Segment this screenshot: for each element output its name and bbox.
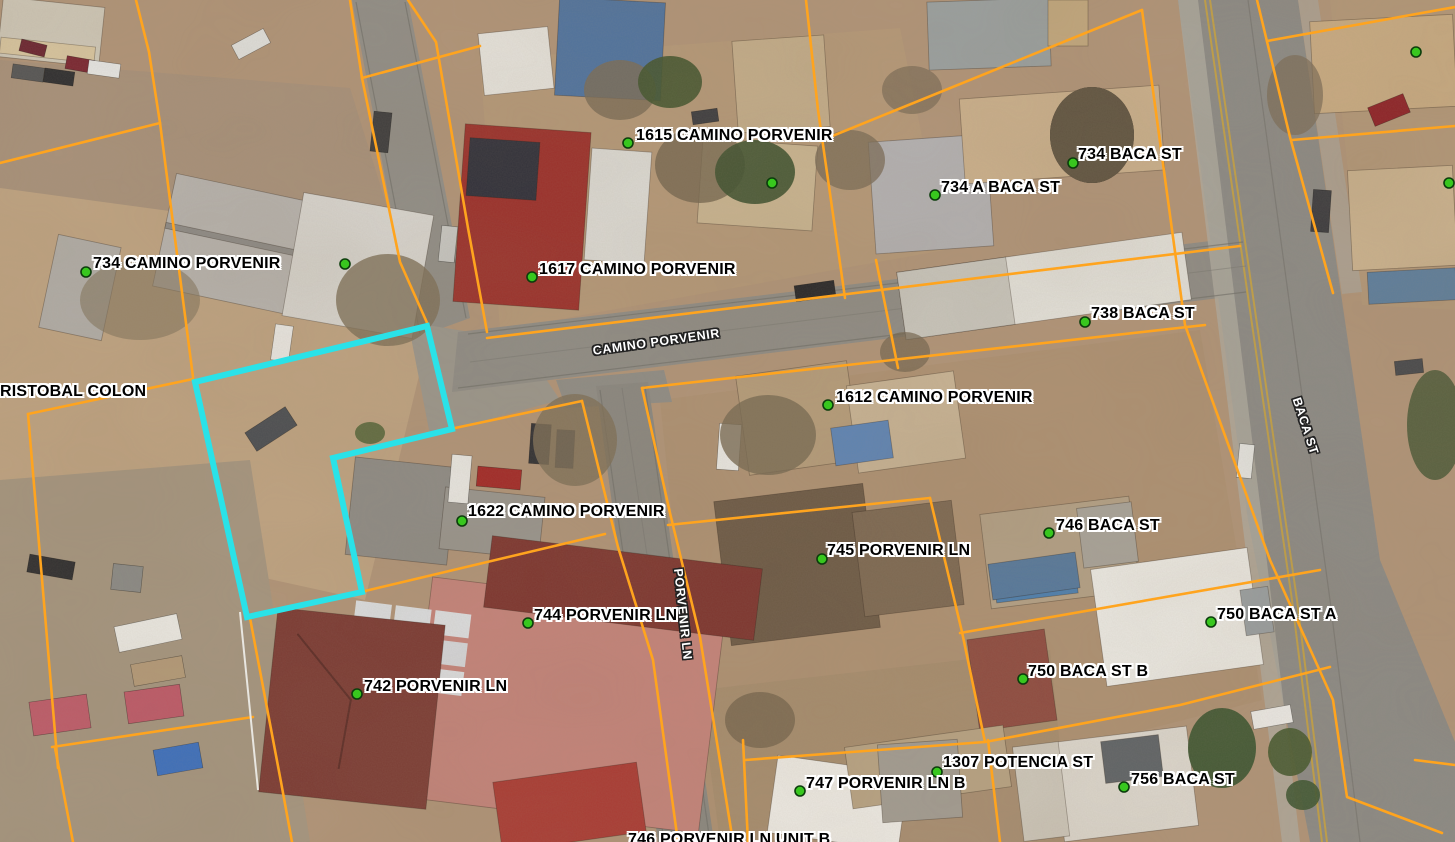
address-label: 1307 POTENCIA ST (943, 755, 1093, 772)
address-label: RISTOBAL COLON (0, 384, 146, 401)
address-marker[interactable] (523, 618, 533, 628)
address-label: 745 PORVENIR LN (827, 543, 970, 560)
address-marker[interactable] (527, 272, 537, 282)
address-label: 747 PORVENIR LN B (806, 776, 966, 793)
address-label: 750 BACA ST B (1028, 664, 1148, 681)
address-label: 734 BACA ST (1078, 147, 1182, 164)
address-label: 734 CAMINO PORVENIR (93, 256, 281, 273)
address-marker[interactable] (457, 516, 467, 526)
address-label: 756 BACA ST (1131, 772, 1235, 789)
address-marker[interactable] (1018, 674, 1028, 684)
address-marker[interactable] (823, 400, 833, 410)
address-label: 746 BACA ST (1056, 518, 1160, 535)
address-marker[interactable] (340, 259, 350, 269)
address-label: 734 A BACA ST (941, 180, 1060, 197)
address-label: 744 PORVENIR LN (534, 608, 677, 625)
address-marker[interactable] (352, 689, 362, 699)
address-label: 1622 CAMINO PORVENIR (468, 504, 665, 521)
address-marker[interactable] (1444, 178, 1454, 188)
address-marker[interactable] (817, 554, 827, 564)
address-label: 746 PORVENIR LN UNIT B (628, 832, 830, 842)
address-label: 1612 CAMINO PORVENIR (836, 390, 1033, 407)
address-marker[interactable] (1044, 528, 1054, 538)
address-marker[interactable] (795, 786, 805, 796)
address-marker[interactable] (767, 178, 777, 188)
aerial-map[interactable]: 1615 CAMINO PORVENIR 734 BACA ST 734 A B… (0, 0, 1455, 842)
address-label: 738 BACA ST (1091, 306, 1195, 323)
address-marker[interactable] (81, 267, 91, 277)
address-label: 1617 CAMINO PORVENIR (539, 262, 736, 279)
address-marker[interactable] (1411, 47, 1421, 57)
address-label: 1615 CAMINO PORVENIR (636, 128, 833, 145)
address-label: 742 PORVENIR LN (364, 679, 507, 696)
address-label: 750 BACA ST A (1217, 607, 1337, 624)
address-marker[interactable] (623, 138, 633, 148)
address-marker[interactable] (1068, 158, 1078, 168)
address-marker[interactable] (930, 190, 940, 200)
address-marker[interactable] (1206, 617, 1216, 627)
address-marker[interactable] (1080, 317, 1090, 327)
address-marker[interactable] (1119, 782, 1129, 792)
